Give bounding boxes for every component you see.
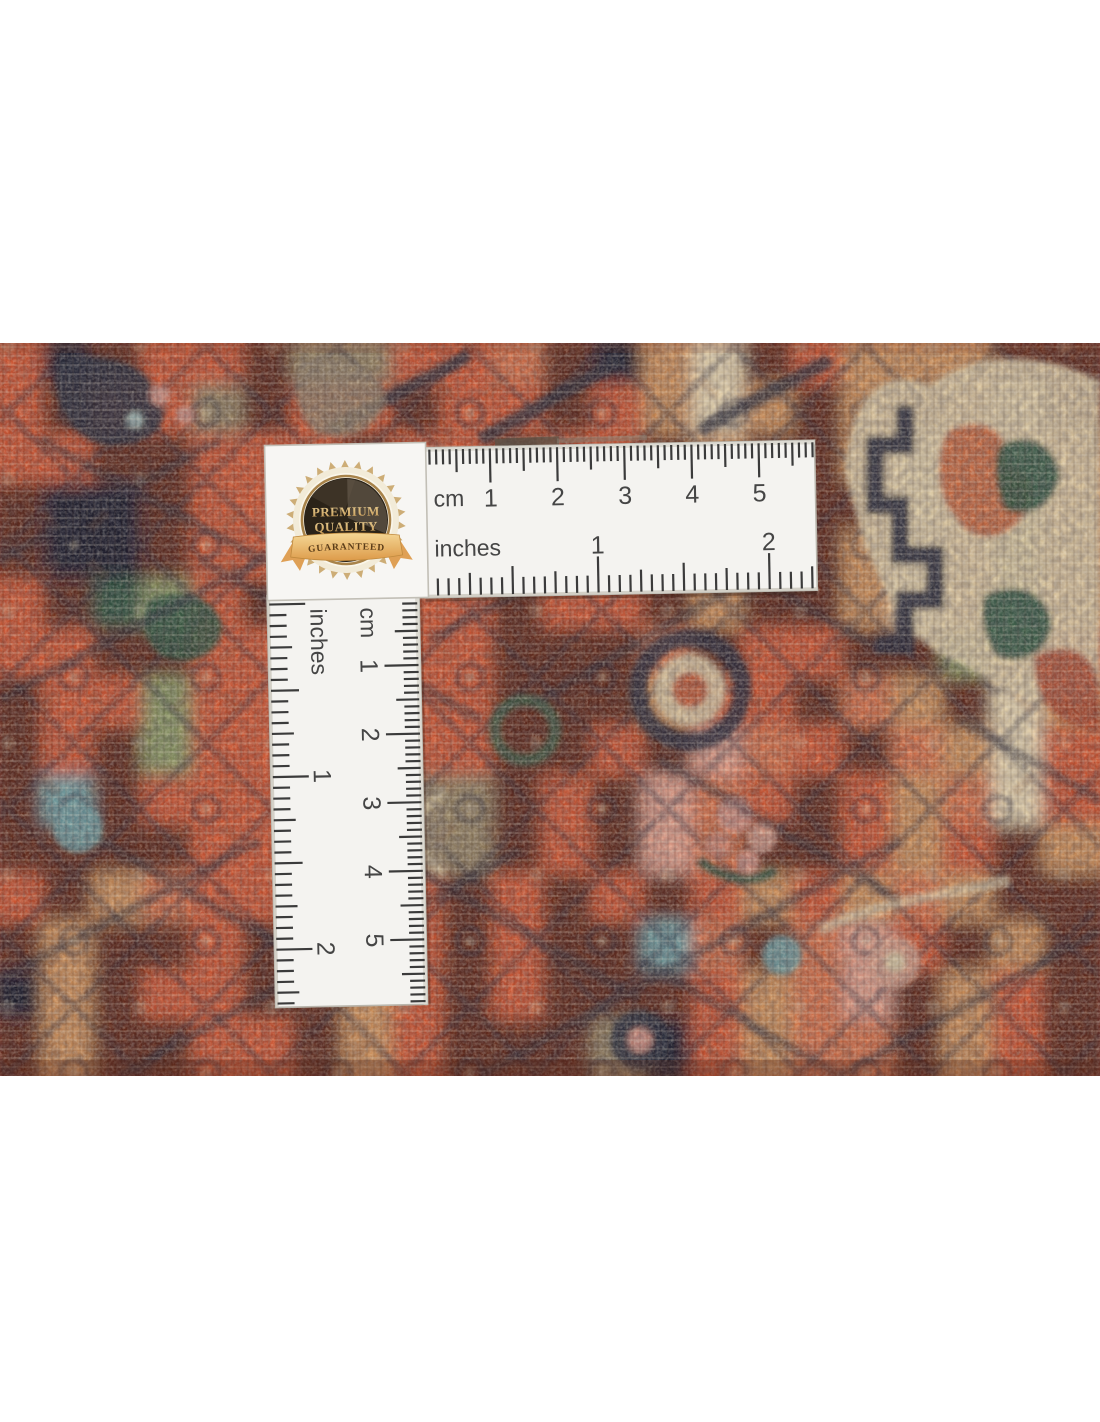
svg-text:1: 1 [484, 484, 498, 512]
svg-text:2: 2 [311, 941, 339, 955]
svg-text:4: 4 [359, 865, 387, 880]
svg-text:cm: cm [355, 607, 382, 638]
svg-text:2: 2 [356, 727, 384, 741]
svg-text:1: 1 [308, 769, 336, 783]
svg-text:5: 5 [752, 479, 766, 507]
svg-text:QUALITY: QUALITY [314, 518, 378, 534]
svg-text:5: 5 [360, 933, 388, 947]
svg-text:3: 3 [618, 482, 632, 510]
svg-text:PREMIUM: PREMIUM [312, 503, 380, 519]
svg-text:1: 1 [354, 659, 382, 673]
svg-text:cm: cm [433, 485, 464, 512]
svg-text:inches: inches [434, 534, 501, 561]
svg-text:2: 2 [551, 483, 565, 511]
svg-text:3: 3 [357, 796, 385, 810]
svg-text:4: 4 [685, 480, 700, 508]
svg-text:2: 2 [762, 528, 776, 556]
svg-text:1: 1 [590, 531, 604, 559]
svg-text:inches: inches [305, 608, 332, 675]
